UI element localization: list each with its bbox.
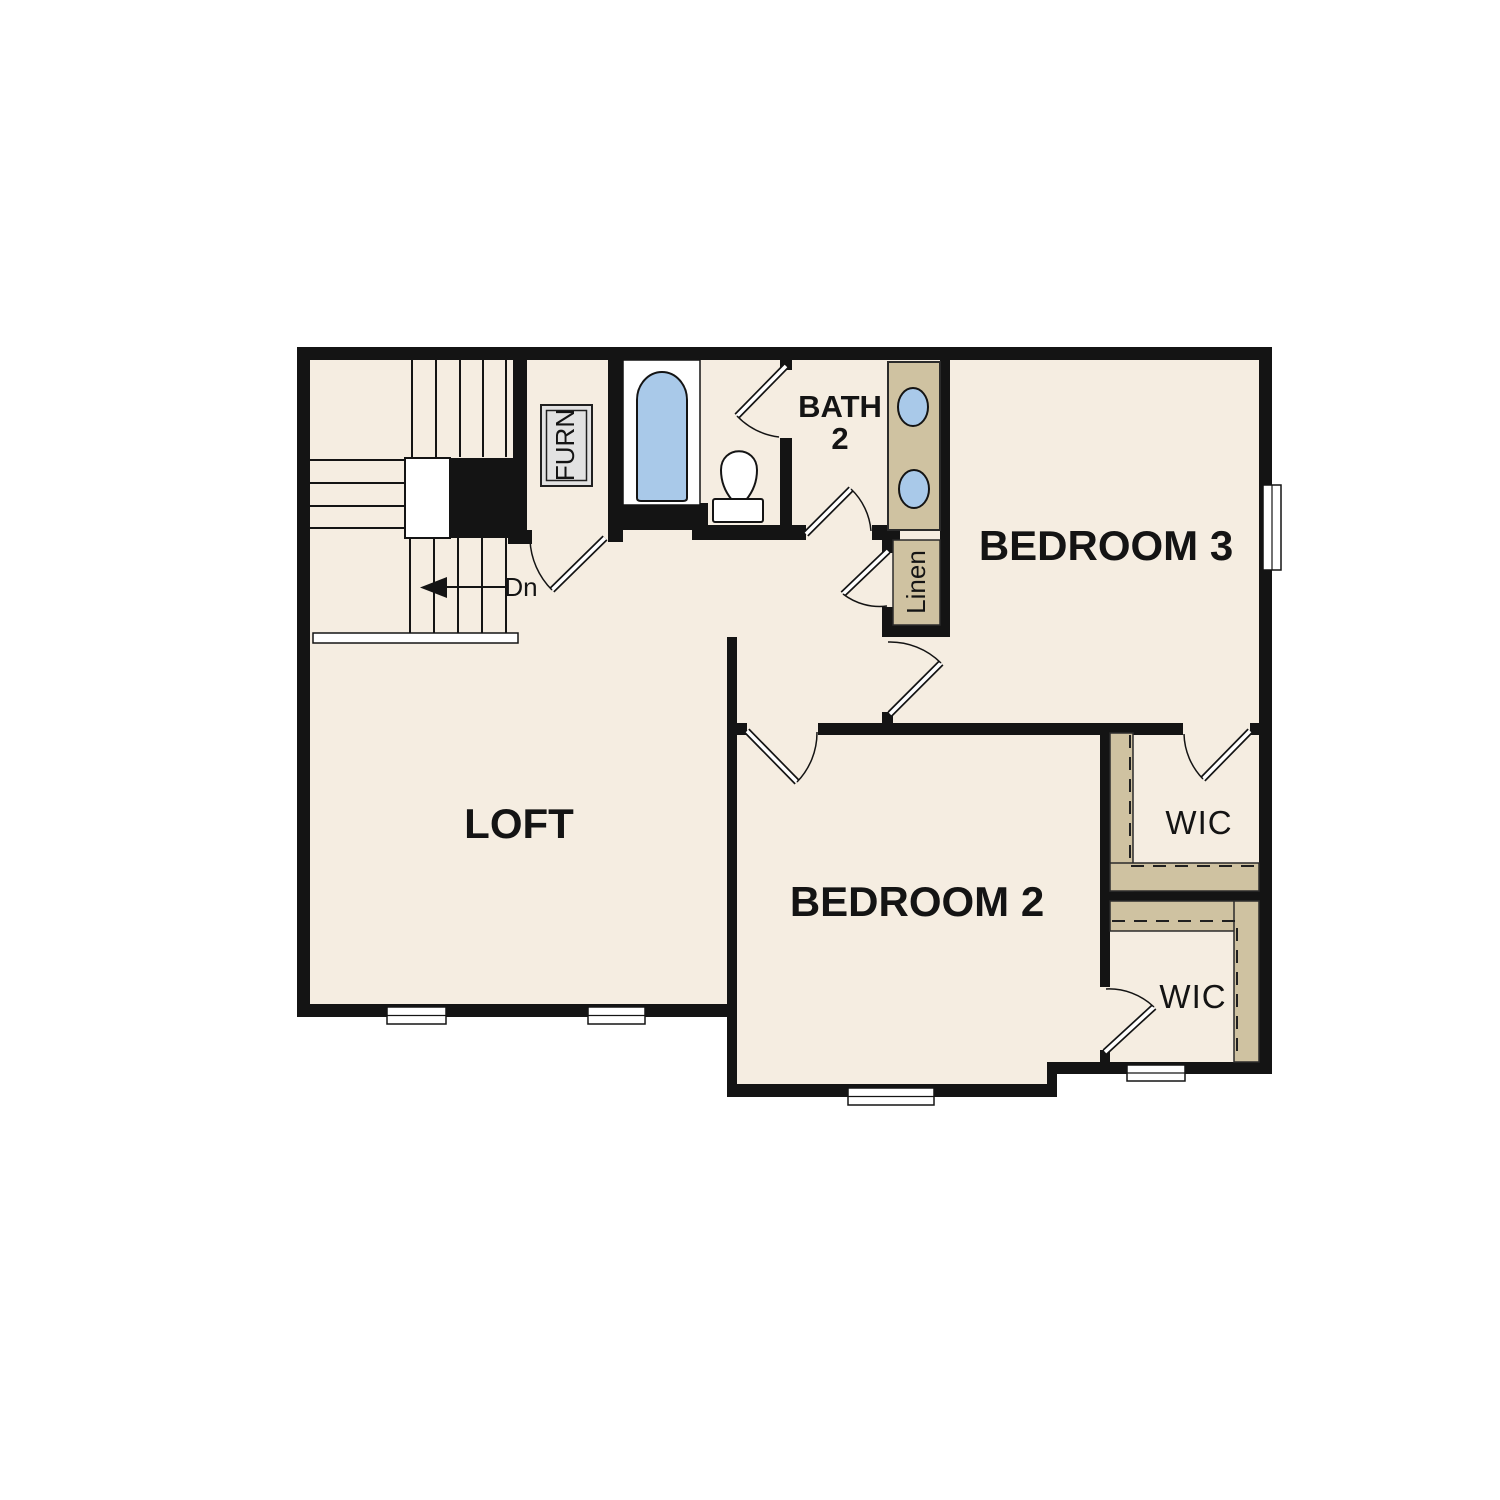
wall-bedroom2-left: [727, 637, 737, 1097]
window-loft-1: [387, 1007, 446, 1024]
wall-bath-bedroom3: [940, 360, 950, 637]
stair-void: [450, 458, 527, 538]
wall-stair-right: [513, 360, 527, 458]
wall-furn-door-jamb: [508, 530, 532, 544]
room-label-wic-upper: WIC: [1165, 804, 1232, 841]
furnace-closet: FURN: [541, 405, 592, 486]
room-label-bath2-line2: 2: [831, 421, 848, 456]
bathtub: [637, 372, 687, 501]
stair-down-label: Dn: [504, 572, 537, 602]
wall-wic-upper-left: [1100, 733, 1110, 891]
window-bedroom2: [848, 1088, 934, 1105]
room-label-linen: Linen: [901, 550, 931, 614]
toilet-tank: [713, 499, 763, 522]
wall-linen-left-stub: [882, 607, 893, 625]
wall-right: [1259, 347, 1272, 1074]
window-bedroom3: [1263, 485, 1281, 570]
room-label-bath2-line1: BATH: [798, 389, 882, 424]
room-label-loft: LOFT: [464, 800, 574, 847]
stair-landing: [405, 458, 450, 538]
floor-plan-drawing: Dn FURN: [0, 0, 1500, 1500]
floor-plan-page: Dn FURN: [0, 0, 1500, 1500]
furnace-label: FURN: [550, 409, 580, 481]
room-label-wic-lower: WIC: [1159, 978, 1226, 1015]
wall-loft-bottom: [297, 1004, 737, 1017]
window-loft-2: [588, 1007, 645, 1024]
wall-wic-lower-left-a: [1100, 901, 1110, 987]
wall-linen-bottom: [882, 625, 950, 637]
wic-upper-shelf-bottom: [1110, 863, 1259, 891]
window-wic-lower: [1127, 1065, 1185, 1081]
room-label-bedroom2: BEDROOM 2: [790, 878, 1044, 925]
wall-top: [297, 347, 1272, 360]
sink-top: [898, 388, 928, 426]
wall-toilet-room: [780, 438, 792, 532]
wall-left: [297, 347, 310, 1017]
sink-bottom: [899, 470, 929, 508]
toilet-bowl: [721, 451, 757, 500]
stair-rail: [313, 633, 518, 643]
wall-wic-middle: [1100, 891, 1259, 901]
room-label-bedroom3: BEDROOM 3: [979, 522, 1233, 569]
